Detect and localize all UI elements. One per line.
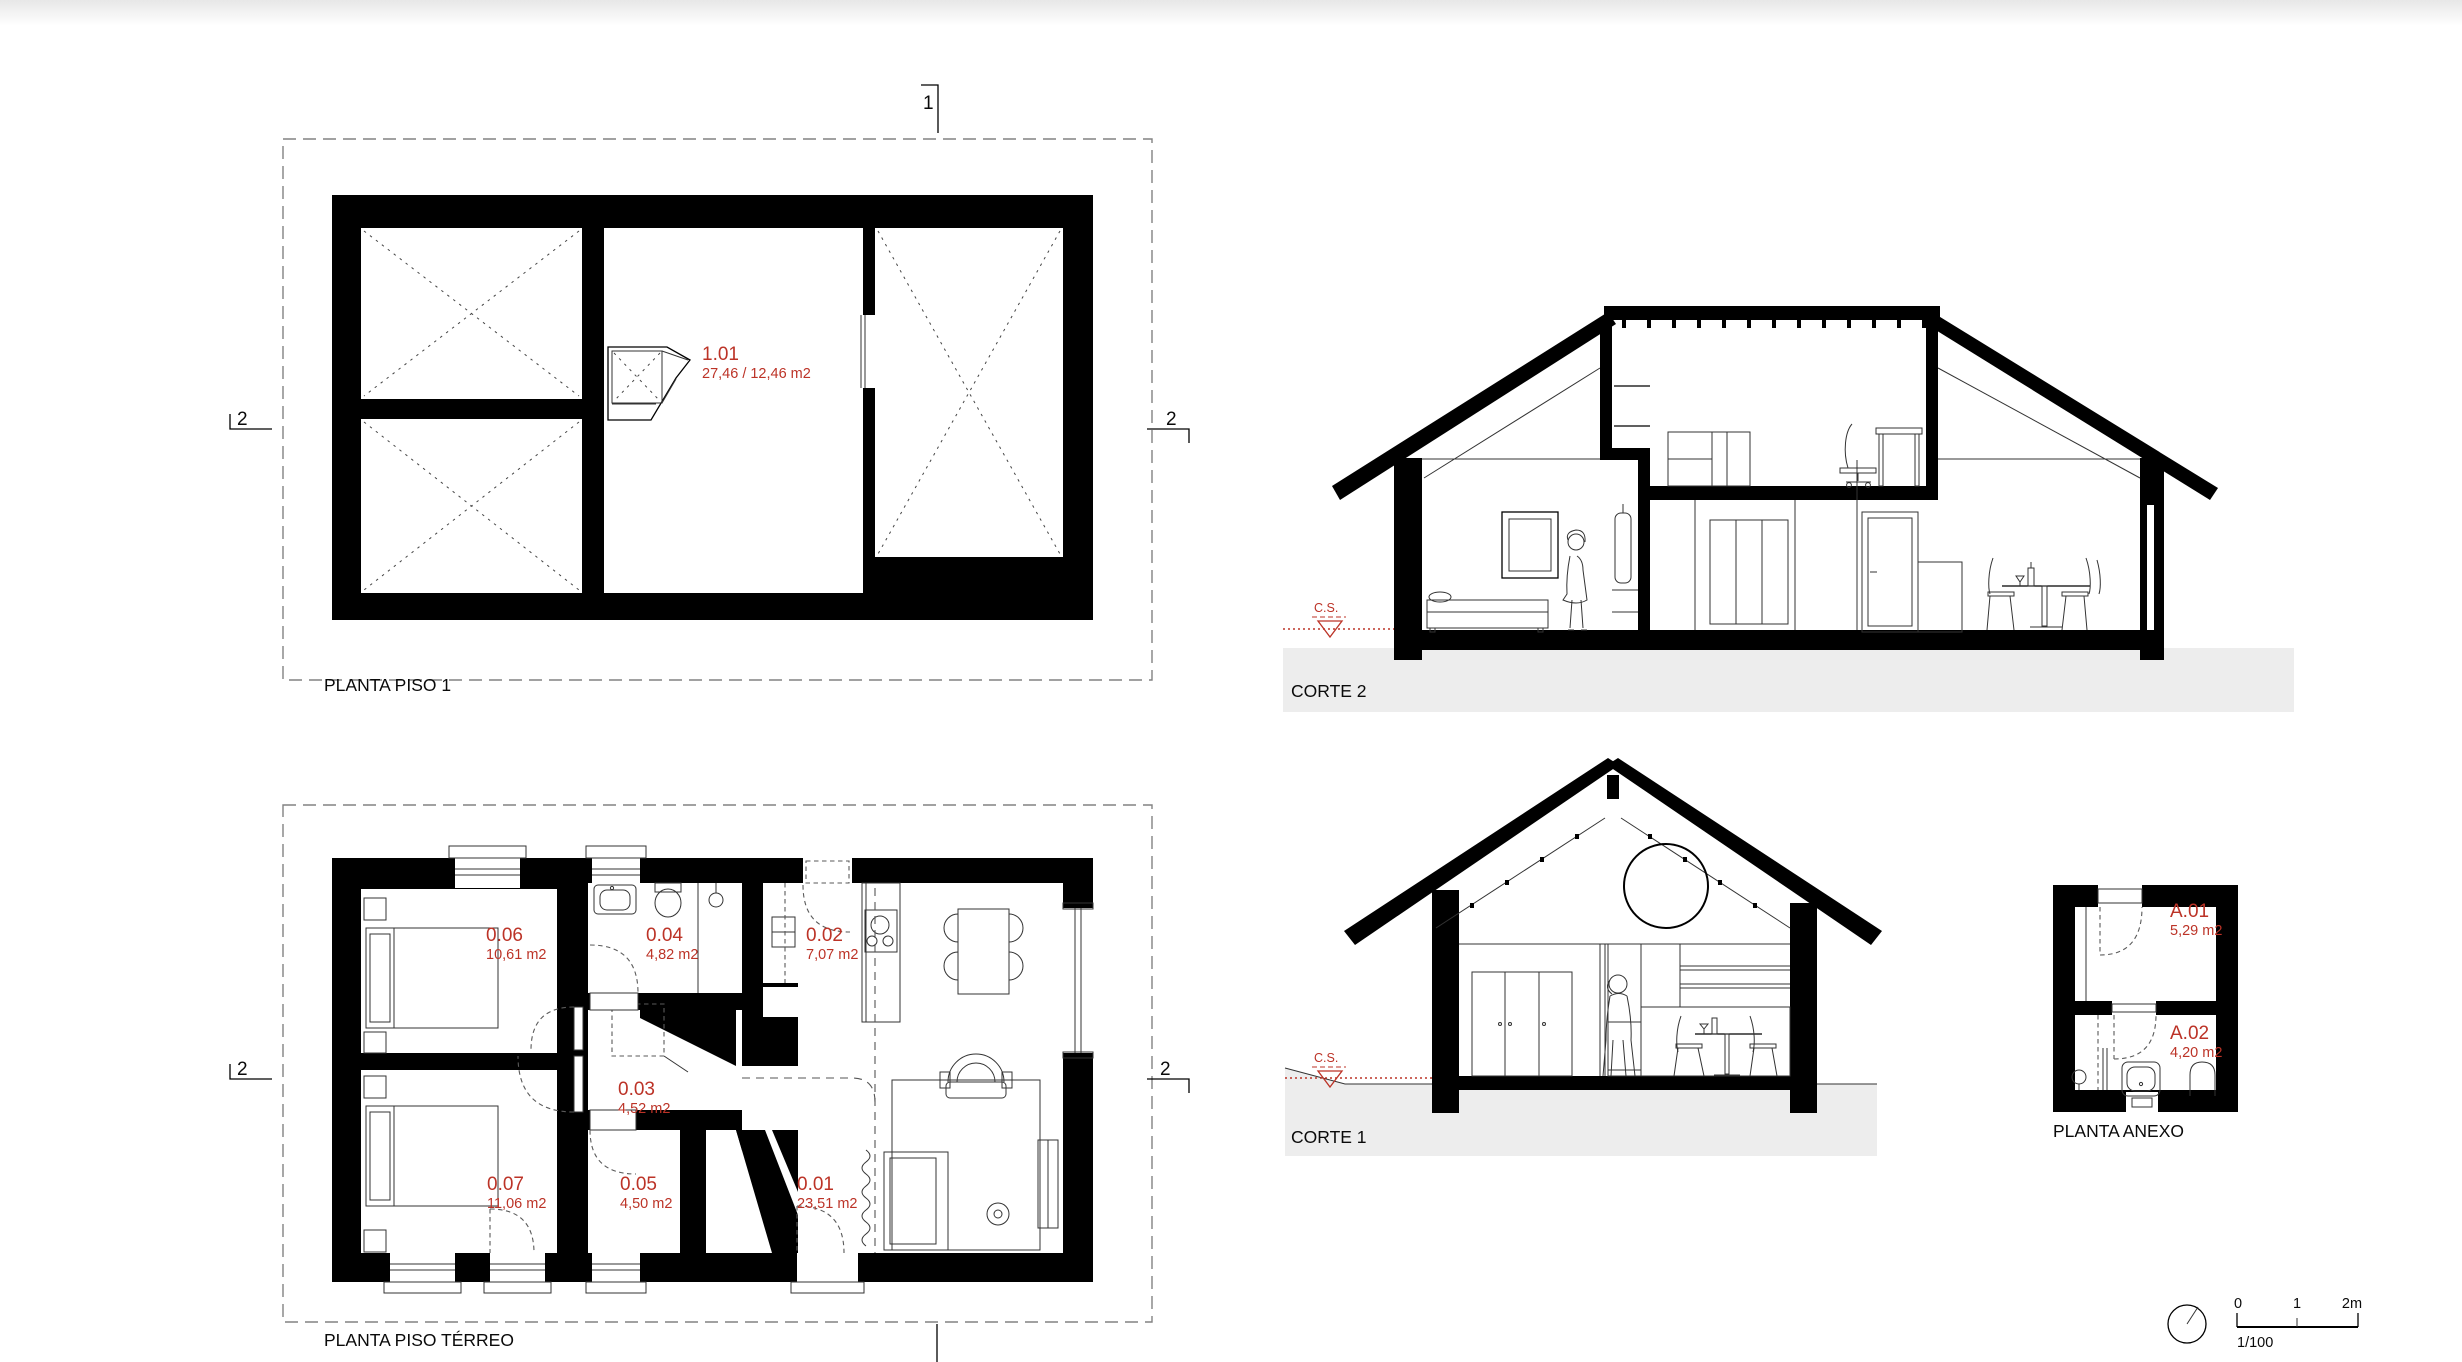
floor-plan-terreo: 0.06 10,61 m2 0.04 4,82 m2 0.02 7,07 m2 … xyxy=(230,805,1189,1362)
room-number: 0.07 xyxy=(487,1174,524,1195)
scale-tick-0: 0 xyxy=(2234,1296,2242,1312)
section-marker-2-label: 2 xyxy=(237,409,248,430)
room-area: 23,51 m2 xyxy=(797,1196,857,1212)
room-area: 5,29 m2 xyxy=(2170,923,2222,939)
floor-plan-anexo: A.01 5,29 m2 A.02 4,20 m2 PLANTA ANEXO xyxy=(2053,885,2238,1141)
section-corte2: C.S. CORTE 2 xyxy=(1283,306,2294,712)
room-area: 4,82 m2 xyxy=(646,947,698,963)
room-number: A.02 xyxy=(2170,1023,2209,1044)
room-number: 0.04 xyxy=(646,925,683,946)
rafter-ticks xyxy=(1470,834,1757,908)
room-number: 0.03 xyxy=(618,1079,655,1100)
room-area: 4,52 m2 xyxy=(618,1101,670,1117)
sheet-canvas: 1 xyxy=(0,0,2462,1362)
room-area: 4,50 m2 xyxy=(620,1196,672,1212)
scale-tick-2: 2m xyxy=(2342,1296,2362,1312)
room-area: 11,06 m2 xyxy=(487,1196,546,1212)
building-walls-piso1 xyxy=(332,195,1093,620)
section-marker-2-label: 2 xyxy=(1166,409,1177,430)
room-number: 0.02 xyxy=(806,925,843,946)
mezzanine-box xyxy=(1600,318,1938,632)
section-title-corte1: CORTE 1 xyxy=(1291,1127,1367,1147)
section-title-corte2: CORTE 2 xyxy=(1291,681,1367,701)
scale-ratio: 1/100 xyxy=(2237,1335,2273,1351)
scale-tick-1: 1 xyxy=(2293,1296,2301,1312)
room-area: 4,20 m2 xyxy=(2170,1045,2222,1061)
section-marker-2-left-bottom: 2 xyxy=(230,1059,272,1080)
section-corte1: C.S. CORTE 1 xyxy=(1285,758,1882,1156)
section-marker-1-top: 1 xyxy=(921,85,938,133)
plan-title-terreo: PLANTA PISO TÉRREO xyxy=(324,1330,514,1350)
room-number: 0.06 xyxy=(486,925,523,946)
roof-corte2 xyxy=(1332,306,2218,500)
kitchen-corte1 xyxy=(1600,944,1790,1076)
plan-title-anexo: PLANTA ANEXO xyxy=(2053,1121,2184,1141)
floor-slab xyxy=(1432,1076,1817,1090)
scale-bar: 0 1 2m 1/100 xyxy=(2168,1296,2362,1351)
section-marker-2-right-bottom: 2 xyxy=(1147,1059,1189,1093)
opening-right-window xyxy=(1063,903,1093,1058)
figure-person-corte2 xyxy=(1563,530,1587,630)
room-area: 10,61 m2 xyxy=(486,947,546,963)
section-marker-2-label: 2 xyxy=(237,1059,248,1080)
drawing-sheet: 1 xyxy=(0,0,2462,1362)
rafter-ticks xyxy=(1622,320,1926,328)
section-marker-2-label: 2 xyxy=(1160,1059,1171,1080)
level-marker-label: C.S. xyxy=(1314,601,1338,615)
section-marker-2-left-top: 2 xyxy=(230,409,272,430)
room-number: A.01 xyxy=(2170,901,2209,922)
section-marker-2-right-top: 2 xyxy=(1147,409,1189,443)
gable-round-window xyxy=(1624,844,1708,928)
level-marker-label: C.S. xyxy=(1314,1051,1338,1065)
floor-slab xyxy=(1394,630,2164,650)
section-marker-1-label: 1 xyxy=(923,93,934,114)
room-number: 0.05 xyxy=(620,1174,657,1195)
room-number: 1.01 xyxy=(702,344,739,365)
level-marker-corte2: C.S. xyxy=(1283,601,1394,637)
wardrobe-corte1 xyxy=(1472,972,1572,1076)
furniture-bed-corte2 xyxy=(1427,592,1548,632)
floor-plan-piso1: 1 xyxy=(230,85,1189,695)
wall-left xyxy=(1394,458,1422,660)
furniture-mezzanine xyxy=(1668,424,1922,487)
plan-title-piso1: PLANTA PISO 1 xyxy=(324,675,451,695)
closet-clothes xyxy=(1612,504,1638,612)
room-number: 0.01 xyxy=(797,1174,834,1195)
room-area: 27,46 / 12,46 m2 xyxy=(702,366,811,382)
furniture-lower-corte2 xyxy=(1710,512,2100,632)
wall-window-corte2 xyxy=(1502,512,1558,578)
room-area: 7,07 m2 xyxy=(806,947,858,963)
